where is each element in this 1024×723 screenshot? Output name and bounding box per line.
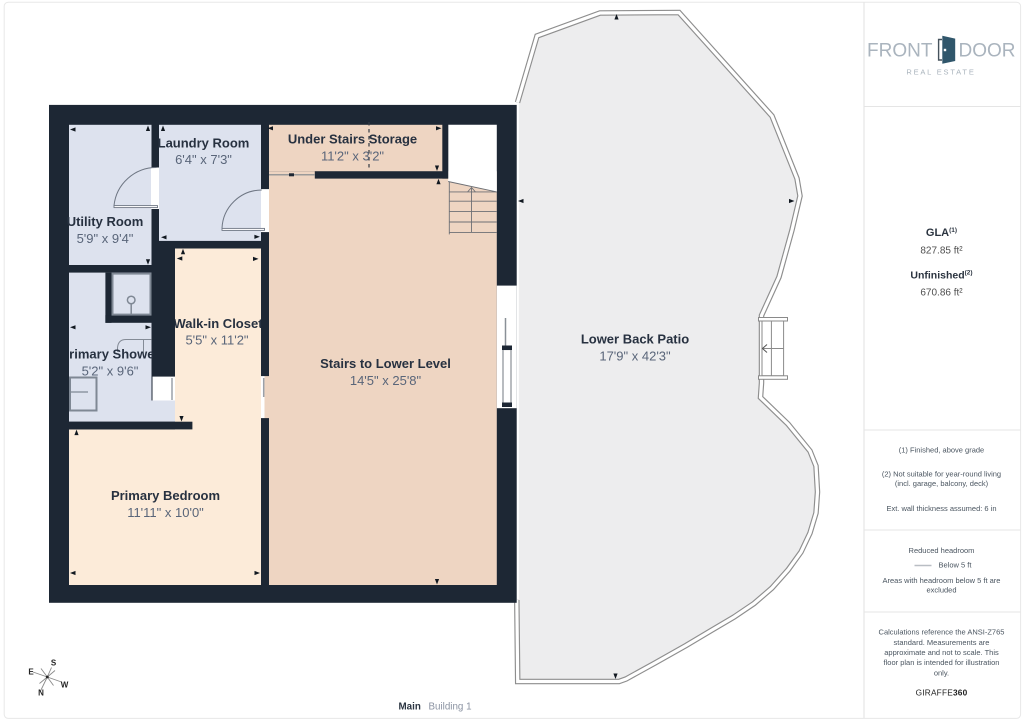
svg-text:FRONT: FRONT	[867, 41, 933, 62]
svg-text:Reduced headroom: Reduced headroom	[909, 546, 975, 555]
svg-text:excluded: excluded	[926, 586, 956, 595]
svg-text:Under Stairs Storage: Under Stairs Storage	[288, 132, 417, 147]
svg-text:5'9" x 9'4": 5'9" x 9'4"	[77, 231, 134, 246]
svg-text:only.: only.	[934, 668, 949, 677]
svg-text:5'5" x 11'2": 5'5" x 11'2"	[185, 333, 248, 348]
svg-text:Areas with headroom below 5 ft: Areas with headroom below 5 ft are	[883, 576, 1001, 585]
svg-text:DOOR: DOOR	[959, 41, 1016, 62]
svg-text:11'2" x 3'2": 11'2" x 3'2"	[321, 149, 384, 164]
svg-text:6'4" x 7'3": 6'4" x 7'3"	[175, 152, 232, 167]
svg-text:Ext. wall thickness assumed: 6: Ext. wall thickness assumed: 6 in	[886, 504, 996, 513]
svg-text:S: S	[51, 659, 57, 668]
svg-text:floor plan is intended for ill: floor plan is intended for illustration	[884, 658, 1000, 667]
svg-text:Building 1: Building 1	[429, 701, 472, 712]
svg-text:Lower Back Patio: Lower Back Patio	[581, 332, 689, 347]
svg-text:670.86 ft²: 670.86 ft²	[920, 288, 963, 299]
svg-text:(incl. garage, balcony, deck): (incl. garage, balcony, deck)	[895, 479, 989, 488]
svg-text:Utility Room: Utility Room	[67, 214, 144, 229]
svg-text:N: N	[38, 689, 44, 698]
svg-text:Unfinished(2): Unfinished(2)	[910, 270, 972, 282]
svg-text:Main: Main	[399, 701, 421, 712]
svg-text:14'5" x 25'8": 14'5" x 25'8"	[350, 373, 422, 388]
svg-text:W: W	[61, 681, 69, 690]
svg-text:11'11" x 10'0": 11'11" x 10'0"	[127, 505, 204, 520]
svg-text:Below 5 ft: Below 5 ft	[939, 561, 973, 570]
svg-text:Walk-in Closet: Walk-in Closet	[173, 316, 263, 331]
svg-text:Primary Bedroom: Primary Bedroom	[111, 488, 220, 503]
svg-text:827.85 ft²: 827.85 ft²	[920, 246, 963, 257]
svg-text:Stairs to Lower Level: Stairs to Lower Level	[320, 356, 451, 371]
svg-text:Primary Shower: Primary Shower	[61, 347, 160, 362]
svg-text:5'2" x 9'6": 5'2" x 9'6"	[82, 364, 139, 379]
svg-text:standard. Measurements are: standard. Measurements are	[894, 638, 990, 647]
svg-text:GIRAFFE360: GIRAFFE360	[916, 688, 968, 698]
svg-text:E: E	[28, 668, 34, 677]
svg-text:Calculations reference the ANS: Calculations reference the ANSI-Z765	[879, 628, 1005, 637]
svg-text:17'9" x 42'3": 17'9" x 42'3"	[599, 349, 671, 364]
svg-text:approximate and not to scale.: approximate and not to scale. This	[884, 648, 999, 657]
svg-text:(1) Finished, above grade: (1) Finished, above grade	[899, 446, 984, 455]
svg-text:REAL ESTATE: REAL ESTATE	[906, 68, 975, 77]
svg-text:Laundry Room: Laundry Room	[158, 136, 250, 151]
svg-text:(2) Not suitable for year-roun: (2) Not suitable for year-round living	[882, 470, 1001, 479]
